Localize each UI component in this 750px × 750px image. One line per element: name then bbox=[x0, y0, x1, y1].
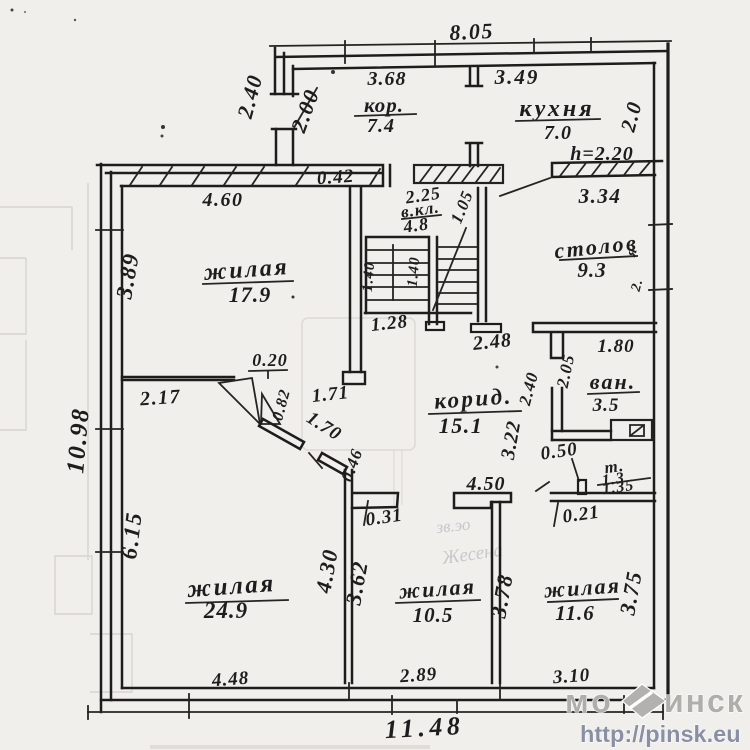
svg-text:2.17: 2.17 bbox=[138, 386, 181, 411]
svg-text:9.3: 9.3 bbox=[577, 258, 606, 282]
svg-text:11.48: 11.48 bbox=[384, 711, 465, 744]
svg-text:11.6: 11.6 bbox=[555, 601, 595, 625]
svg-text:1.28: 1.28 bbox=[370, 311, 409, 336]
svg-text:4.60: 4.60 bbox=[202, 189, 244, 211]
svg-text:3.49: 3.49 bbox=[494, 65, 540, 89]
svg-text:17.9: 17.9 bbox=[229, 282, 272, 307]
svg-text:4.8: 4.8 bbox=[401, 213, 430, 236]
svg-text:мо: мо bbox=[565, 683, 614, 719]
svg-text:8.05: 8.05 bbox=[449, 18, 495, 45]
svg-text:1.40: 1.40 bbox=[360, 261, 379, 293]
svg-text:зв.эо: зв.эо bbox=[434, 515, 471, 538]
svg-text:3.5: 3.5 bbox=[592, 395, 620, 416]
svg-text:10.98: 10.98 bbox=[62, 406, 95, 474]
svg-text:4.50: 4.50 bbox=[466, 473, 506, 495]
svg-text:инск: инск bbox=[664, 683, 745, 719]
svg-text:1.71: 1.71 bbox=[311, 382, 350, 407]
svg-text:0.20: 0.20 bbox=[252, 350, 288, 370]
svg-text:http://pinsk.eu: http://pinsk.eu bbox=[580, 721, 741, 747]
svg-text:1.40: 1.40 bbox=[405, 256, 424, 288]
svg-text:кор.: кор. bbox=[364, 93, 404, 117]
svg-text:4.48: 4.48 bbox=[210, 668, 250, 692]
svg-text:10.5: 10.5 bbox=[413, 603, 454, 627]
svg-text:ван.: ван. bbox=[590, 369, 636, 394]
svg-text:кухня: кухня bbox=[519, 96, 594, 122]
svg-text:3.68: 3.68 bbox=[367, 68, 407, 90]
svg-text:2.89: 2.89 bbox=[398, 664, 438, 688]
svg-text:1.80: 1.80 bbox=[597, 336, 634, 357]
svg-text:3.34: 3.34 bbox=[578, 184, 622, 208]
svg-text:7.0: 7.0 bbox=[544, 122, 572, 144]
svg-text:2.48: 2.48 bbox=[471, 329, 513, 355]
svg-text:24.9: 24.9 bbox=[203, 598, 248, 623]
svg-text:0.42: 0.42 bbox=[316, 166, 355, 190]
svg-text:15.1: 15.1 bbox=[439, 413, 484, 438]
svg-text:7.4: 7.4 bbox=[367, 115, 395, 137]
